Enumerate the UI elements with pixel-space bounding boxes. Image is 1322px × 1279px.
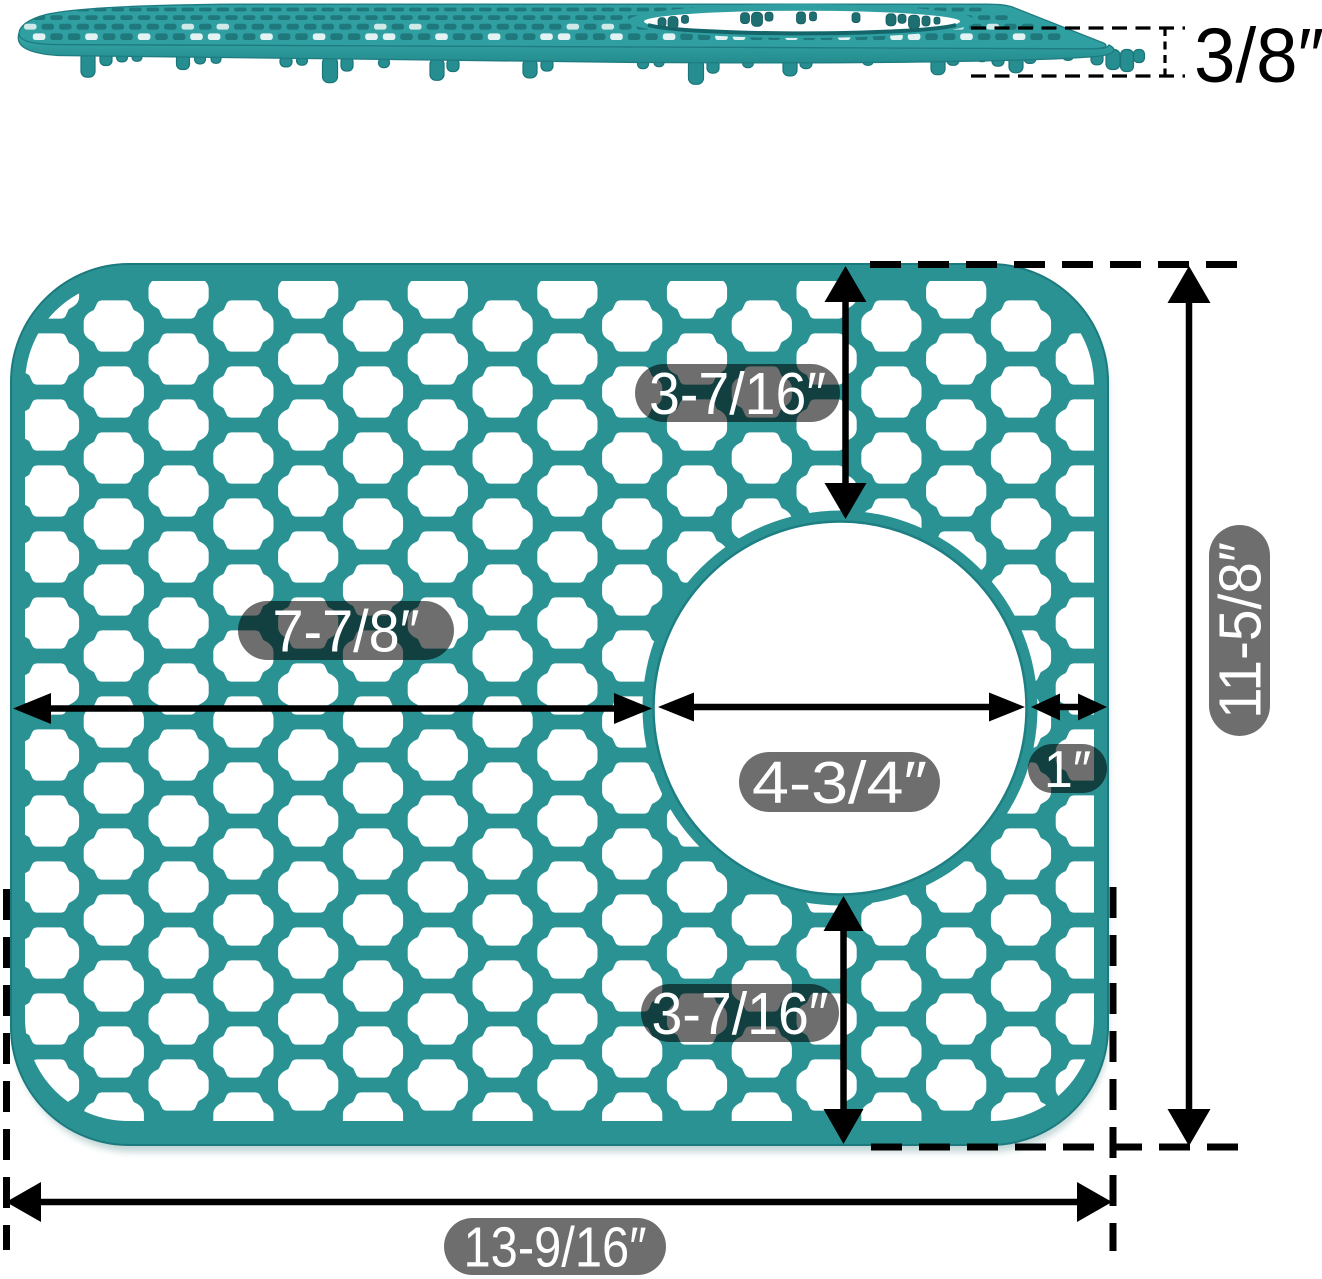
svg-text:3-7/16″: 3-7/16″ [649,361,826,427]
svg-text:13-9/16″: 13-9/16″ [464,1216,647,1279]
svg-text:3-7/16″: 3-7/16″ [652,981,829,1047]
svg-text:1″: 1″ [1044,741,1091,799]
svg-text:3/8″: 3/8″ [1194,13,1322,99]
svg-text:7-7/8″: 7-7/8″ [273,598,420,664]
svg-text:11-5/8″: 11-5/8″ [1207,542,1273,719]
svg-text:4-3/4″: 4-3/4″ [752,750,927,816]
